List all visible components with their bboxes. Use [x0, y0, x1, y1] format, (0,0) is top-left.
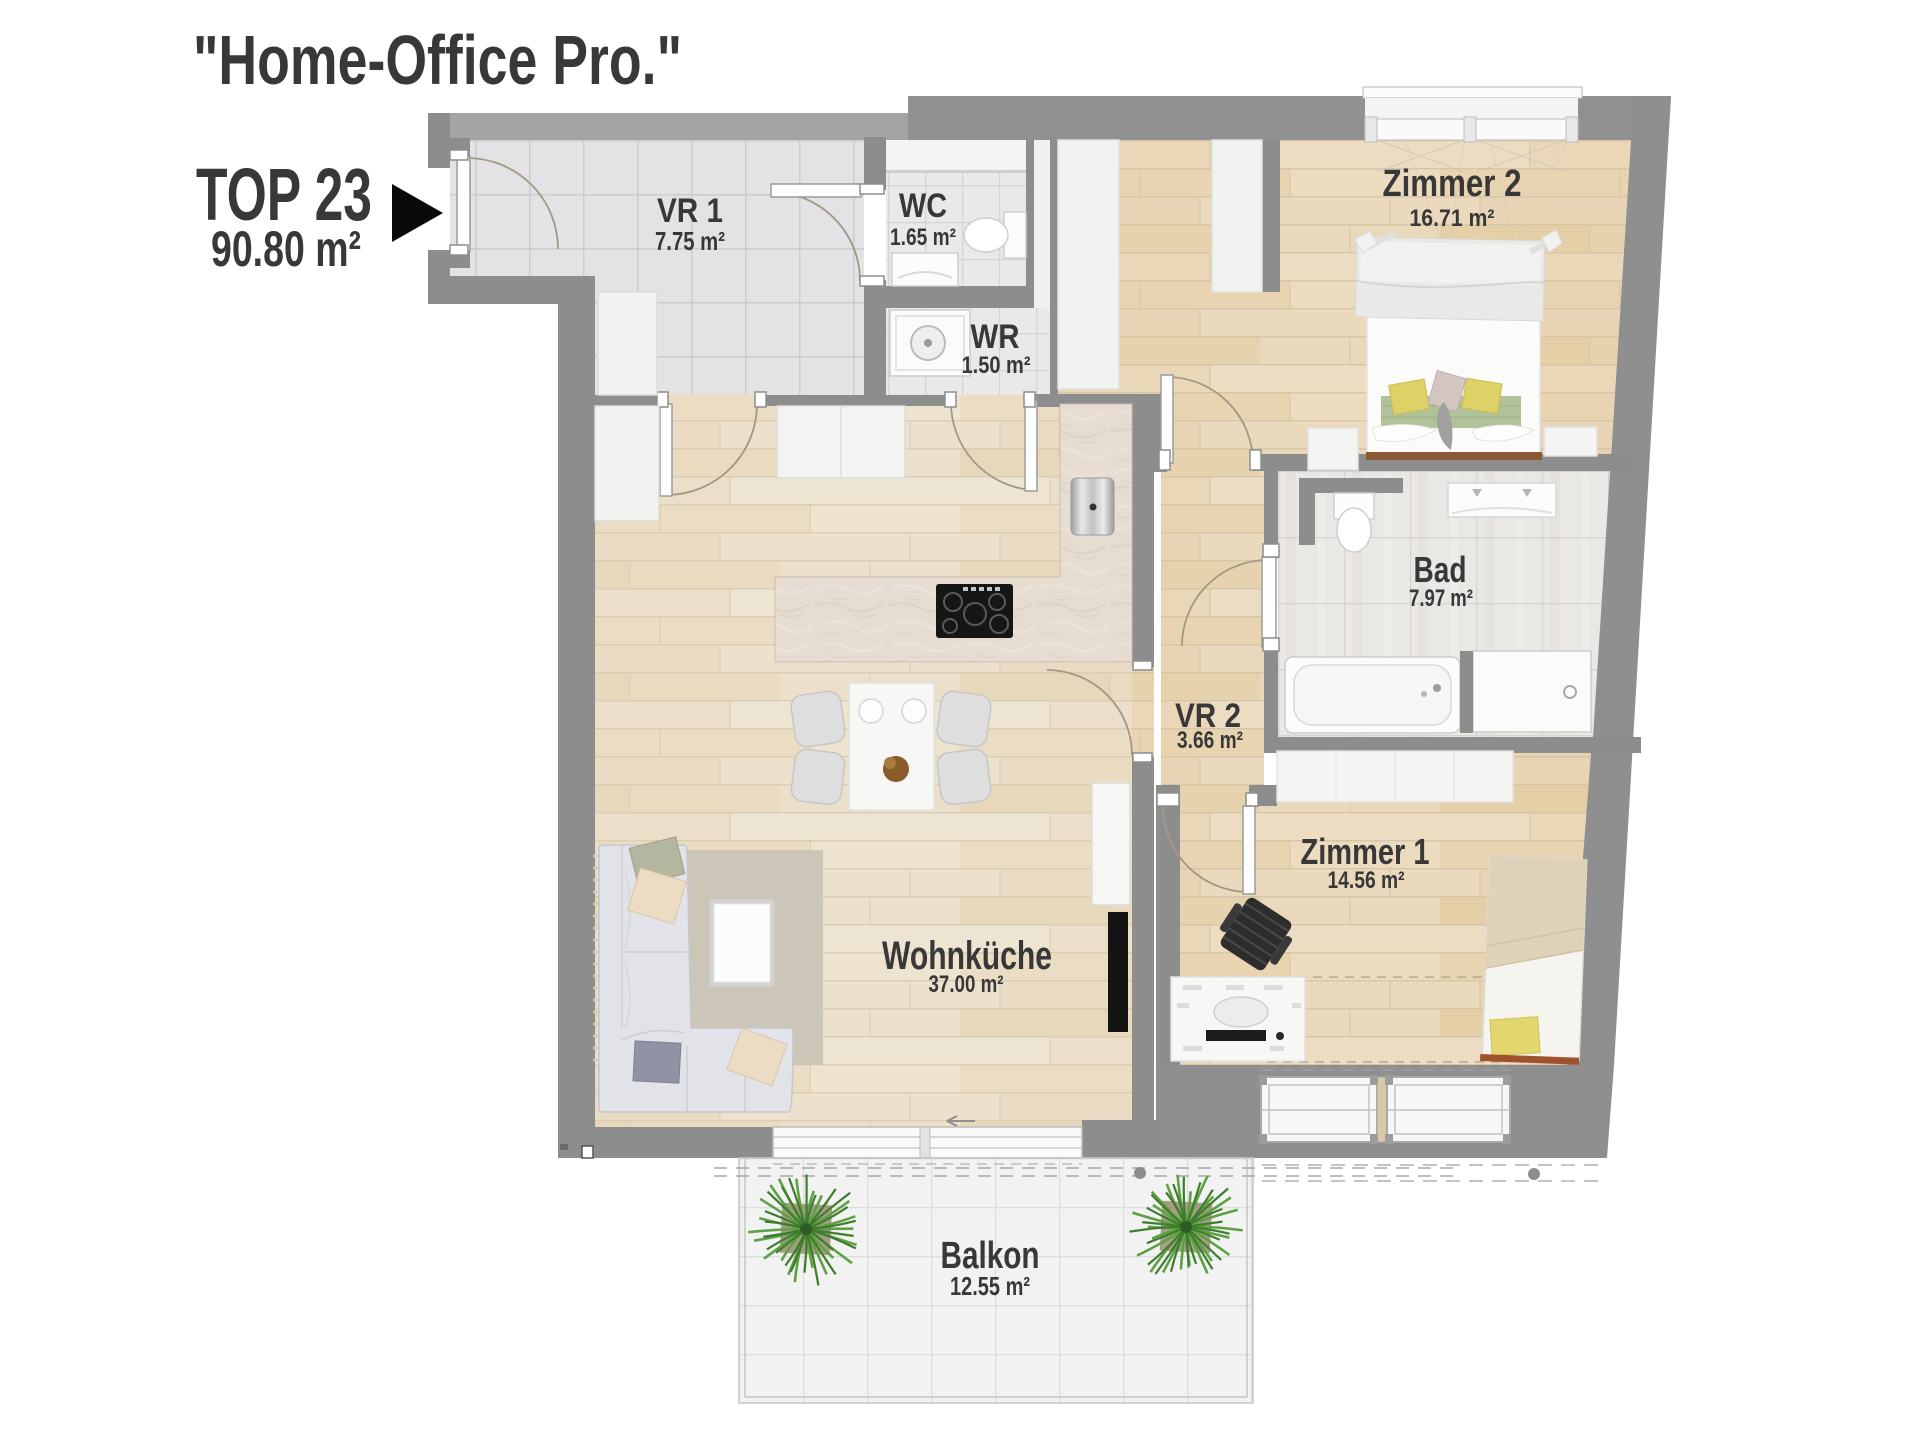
- svg-text:Zimmer 2: Zimmer 2: [1383, 163, 1522, 205]
- svg-text:3.66 m²: 3.66 m²: [1177, 727, 1243, 754]
- svg-text:1.50 m²: 1.50 m²: [962, 352, 1031, 379]
- svg-text:"Home-Office Pro.": "Home-Office Pro.": [193, 21, 682, 99]
- svg-text:Zimmer 1: Zimmer 1: [1301, 831, 1430, 872]
- svg-text:14.56 m²: 14.56 m²: [1328, 867, 1405, 894]
- svg-text:VR 1: VR 1: [657, 192, 723, 230]
- svg-text:37.00 m²: 37.00 m²: [929, 971, 1004, 998]
- svg-text:90.80 m²: 90.80 m²: [211, 221, 361, 277]
- svg-text:7.75 m²: 7.75 m²: [655, 226, 725, 256]
- svg-text:Bad: Bad: [1414, 549, 1467, 590]
- svg-text:12.55 m²: 12.55 m²: [950, 1271, 1030, 1301]
- svg-text:1.65 m²: 1.65 m²: [890, 224, 956, 251]
- svg-text:WC: WC: [899, 187, 947, 225]
- svg-text:WR: WR: [971, 318, 1020, 356]
- svg-text:7.97 m²: 7.97 m²: [1409, 585, 1473, 612]
- svg-text:16.71 m²: 16.71 m²: [1410, 205, 1495, 232]
